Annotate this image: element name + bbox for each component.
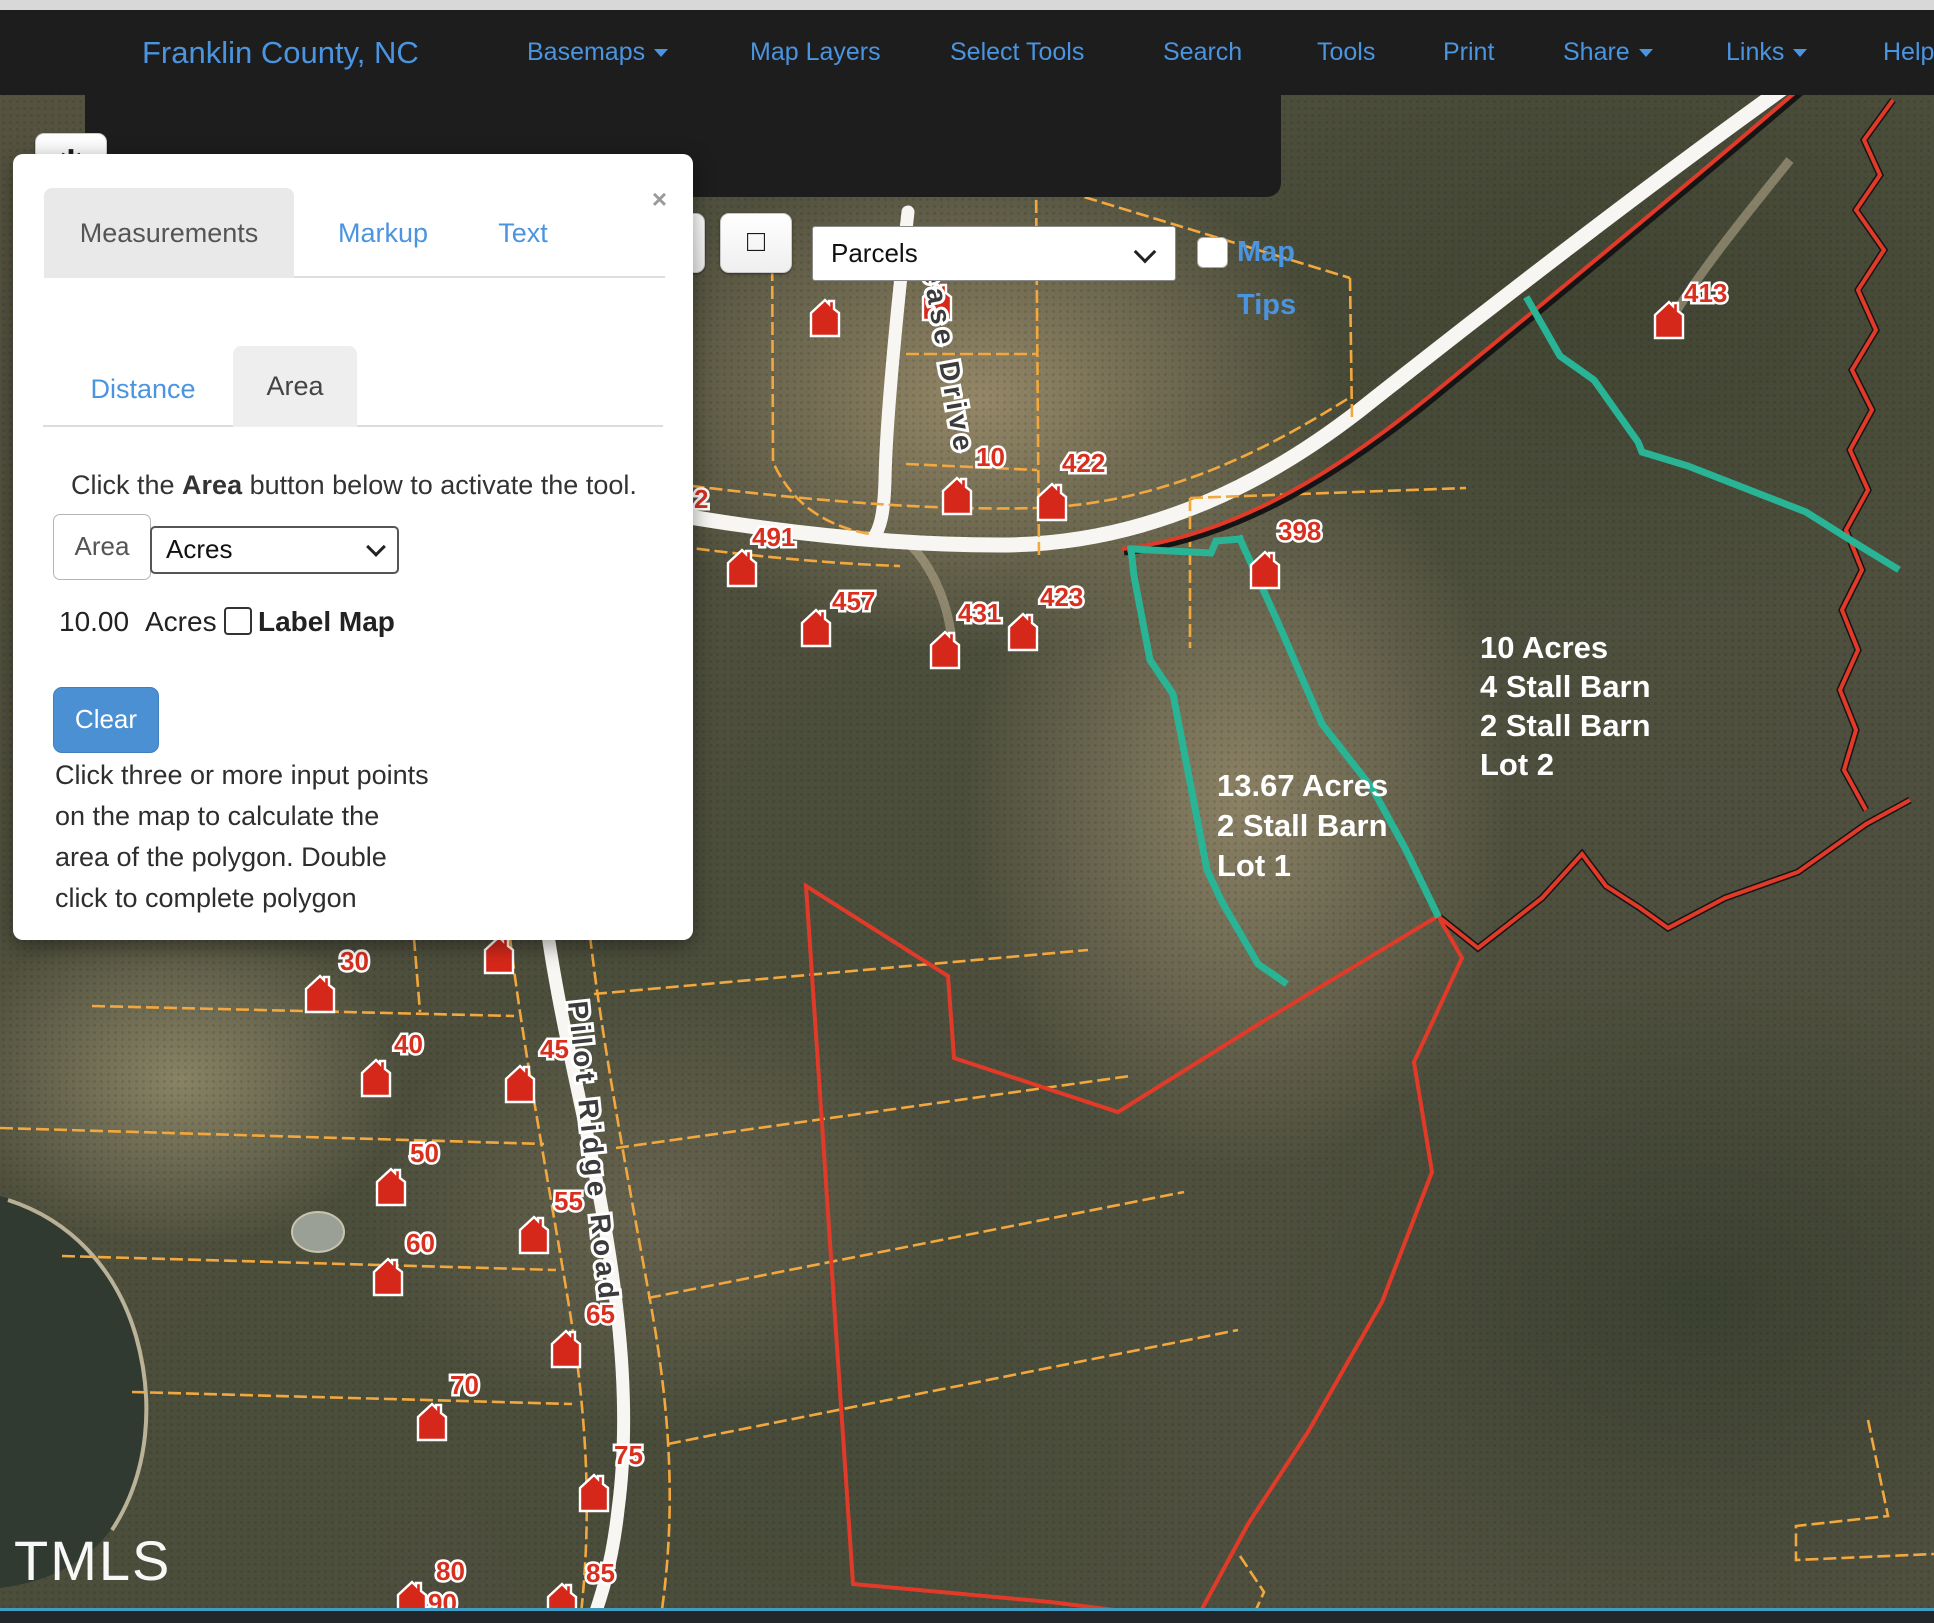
app-title: Franklin County, NC — [142, 10, 419, 95]
map-tips-label: Map Tips — [1237, 226, 1296, 279]
caret-down-icon — [1639, 49, 1653, 57]
result-row: 10.00 Acres Label Map — [13, 606, 693, 640]
parcel-number-label: 75 — [614, 1440, 643, 1470]
parcel-number-label: 45 — [540, 1034, 569, 1064]
house-icon — [506, 1066, 534, 1102]
layer-select[interactable]: Parcels — [812, 226, 1176, 281]
house-icon — [580, 1475, 608, 1511]
parcel-number-label: 398 — [1278, 516, 1321, 546]
area-result-units: Acres — [145, 606, 217, 638]
tab-text[interactable]: Text — [468, 188, 578, 278]
nav-tools[interactable]: Tools — [1317, 10, 1375, 95]
tab-measurements[interactable]: Measurements — [44, 188, 294, 278]
polygon-help-text: Click three or more input points on the … — [55, 755, 429, 919]
nav-share[interactable]: Share — [1563, 10, 1653, 95]
close-icon[interactable]: × — [652, 184, 667, 215]
parcel-number-label: 70 — [450, 1370, 479, 1400]
app-window: 2010422398457431491423413230404550556065… — [0, 0, 1934, 1623]
house-icon — [802, 610, 830, 646]
label-map-label: Label Map — [258, 606, 395, 638]
house-icon — [1655, 302, 1683, 338]
house-icon — [485, 937, 513, 973]
browser-strip — [0, 0, 1934, 10]
area-tool-button[interactable]: Area — [53, 514, 151, 580]
bottom-bar — [0, 1608, 1934, 1623]
select-box-icon: □ — [747, 225, 765, 258]
parcel-number-label: 423 — [1040, 582, 1083, 612]
nav-select-tools[interactable]: Select Tools — [950, 10, 1084, 95]
parcel-number-label: 431 — [958, 598, 1001, 628]
measurement-panel: × Measurements Markup Text Distance Area… — [13, 154, 693, 940]
lot-annotation: 2 Stall Barn — [1480, 708, 1651, 743]
top-nav: Franklin County, NC Basemaps Map Layers … — [0, 10, 1934, 95]
selected-parcel-boundary — [806, 66, 1910, 1620]
house-icon — [931, 632, 959, 668]
nav-print[interactable]: Print — [1443, 10, 1494, 95]
parcel-number-label: 491 — [752, 522, 795, 552]
lot-annotation: Lot 1 — [1217, 848, 1291, 883]
tab-distance[interactable]: Distance — [68, 349, 218, 429]
house-icon — [811, 300, 839, 336]
tmls-watermark: TMLS — [14, 1528, 171, 1593]
chevron-down-icon — [366, 537, 386, 557]
tab-divider — [294, 276, 665, 278]
house-icon — [306, 976, 334, 1012]
caret-down-icon — [1793, 49, 1807, 57]
house-icon — [1009, 614, 1037, 650]
area-result-value: 10.00 — [59, 606, 129, 638]
pond — [292, 1212, 344, 1252]
driveway — [905, 540, 952, 642]
parcel-number-label: 457 — [832, 586, 875, 616]
lot-annotation: 13.67 Acres — [1217, 768, 1388, 803]
tool-instruction: Click the Area button below to activate … — [71, 470, 637, 501]
select-box-button[interactable]: □ — [720, 213, 792, 273]
house-icon — [943, 478, 971, 514]
parcel-number-label: 413 — [1684, 278, 1727, 308]
parcel-number-label: 422 — [1062, 448, 1105, 478]
nav-help[interactable]: Help — [1883, 10, 1934, 95]
house-icon — [520, 1217, 548, 1253]
caret-down-icon — [654, 49, 668, 57]
house-icon — [1038, 484, 1066, 520]
nav-links[interactable]: Links — [1726, 10, 1807, 95]
parcel-number-label: 55 — [554, 1186, 583, 1216]
nav-map-layers[interactable]: Map Layers — [750, 10, 881, 95]
parcel-number-label: 2 — [694, 484, 708, 514]
house-icon — [362, 1060, 390, 1096]
clear-button[interactable]: Clear — [53, 687, 159, 753]
parcel-number-label: 30 — [340, 946, 369, 976]
parcel-number-label: 60 — [406, 1228, 435, 1258]
tab-area[interactable]: Area — [233, 346, 357, 427]
lot-annotation: Lot 2 — [1480, 747, 1554, 782]
parcel-number-label: 10 — [976, 442, 1005, 472]
nav-search[interactable]: Search — [1163, 10, 1242, 95]
house-icon — [377, 1169, 405, 1205]
house-icon — [552, 1331, 580, 1367]
label-map-checkbox[interactable] — [224, 607, 252, 635]
road-name-label: Pilot Ridge Road — [562, 999, 625, 1305]
parcel-number-label: 50 — [410, 1138, 439, 1168]
parcel-number-label: 80 — [436, 1556, 465, 1586]
map-tips-checkbox[interactable] — [1197, 237, 1228, 268]
parcel-number-label: 85 — [586, 1558, 615, 1588]
house-icon — [1251, 552, 1279, 588]
units-select[interactable]: Acres — [150, 526, 399, 574]
lot-annotation: 10 Acres — [1480, 630, 1608, 665]
house-icon — [728, 550, 756, 586]
lot-annotation: 4 Stall Barn — [1480, 669, 1651, 704]
nav-basemaps[interactable]: Basemaps — [527, 10, 668, 95]
parcel-number-label: 40 — [394, 1029, 423, 1059]
lot-annotation: 2 Stall Barn — [1217, 808, 1388, 843]
house-icon — [418, 1404, 446, 1440]
chevron-down-icon — [1134, 241, 1157, 264]
tab-markup[interactable]: Markup — [313, 188, 453, 278]
